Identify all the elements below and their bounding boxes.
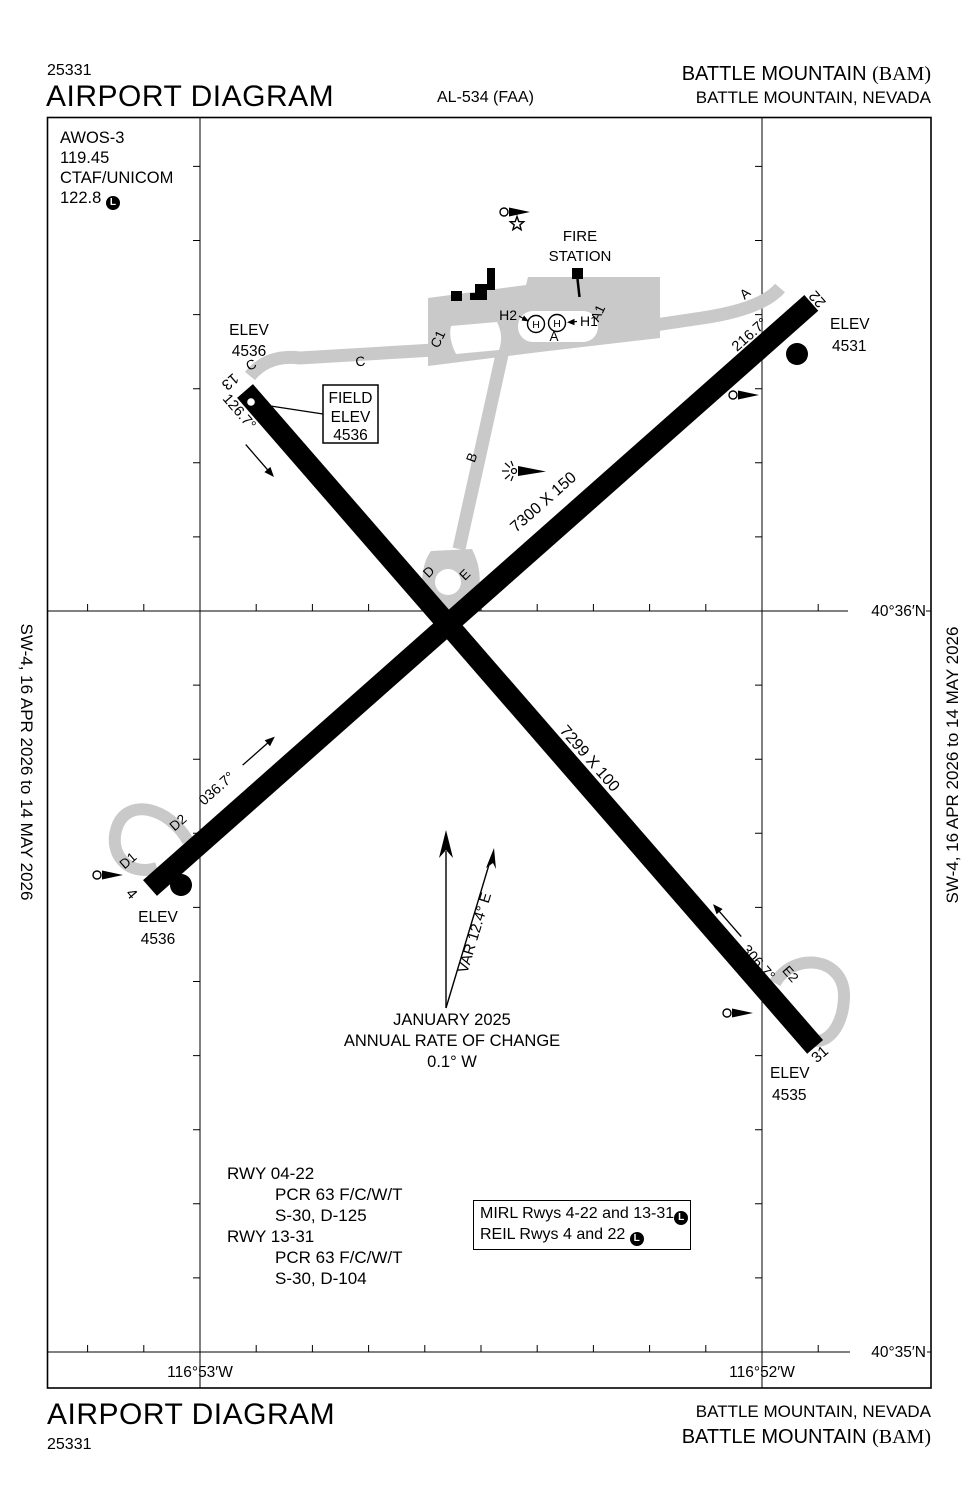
helipad-icon: H — [528, 316, 545, 333]
field-elev-line2: ELEV — [331, 409, 371, 426]
wind-cone-icon — [93, 871, 123, 880]
rwy4-elev-value: 4536 — [141, 931, 175, 948]
rwy31-elev-label: ELEV — [770, 1065, 810, 1082]
fire-station-label-line1: FIRE — [563, 228, 597, 245]
wind-cone-icon — [729, 391, 759, 400]
runway-04-22 — [143, 295, 818, 896]
rwy4-elev-label: ELEV — [138, 909, 178, 926]
wind-cone-icon — [723, 1009, 753, 1018]
fire-station-label-line2: STATION — [549, 248, 612, 265]
runway-4-number: 4 — [122, 885, 140, 902]
rwy22-elev-label: ELEV — [830, 316, 870, 333]
light-beacon-icon — [502, 461, 546, 481]
wind-cone-icon — [500, 208, 530, 217]
building — [475, 284, 487, 300]
svg-text:H: H — [532, 319, 540, 331]
taxiway-a-label: A — [549, 329, 558, 344]
beacon-star-icon — [510, 217, 523, 230]
helipad-h2-label: H2 — [499, 307, 517, 323]
runway-13-31 — [237, 384, 823, 1054]
airport-diagram-map: P P H H H2 H1 FIRE STATION FIELD ELEV 45… — [0, 0, 978, 1500]
latitude-label-bottom: 40°35′N — [871, 1344, 926, 1361]
rwy13-elev-label: ELEV — [229, 322, 269, 339]
airport-diagram-page: { "page": { "pub_number": "25331", "titl… — [0, 0, 978, 1500]
true-north-arrow — [439, 830, 453, 1008]
runway-13-number: 13 — [218, 370, 242, 394]
latitude-label-top: 40°36′N — [871, 603, 926, 620]
building — [470, 293, 475, 300]
taxiway-b-path — [459, 350, 503, 549]
fire-station-building — [572, 268, 583, 279]
rwy31-elev-value: 4535 — [772, 1087, 806, 1104]
longitude-label-west: 116°53′W — [167, 1364, 233, 1381]
longitude-label-east: 116°52′W — [729, 1364, 795, 1381]
apron-island-west — [450, 322, 501, 354]
field-elev-line3: 4536 — [333, 427, 367, 444]
field-elev-line1: FIELD — [329, 390, 373, 407]
rwy22-elev-value: 4531 — [832, 338, 866, 355]
parking-icon: P — [782, 339, 813, 370]
variation-label: VAR 12.4° E — [455, 891, 496, 976]
building — [487, 268, 495, 290]
building — [451, 291, 462, 301]
taxiway-c-path — [250, 350, 434, 376]
field-elevation-dot — [247, 398, 255, 406]
